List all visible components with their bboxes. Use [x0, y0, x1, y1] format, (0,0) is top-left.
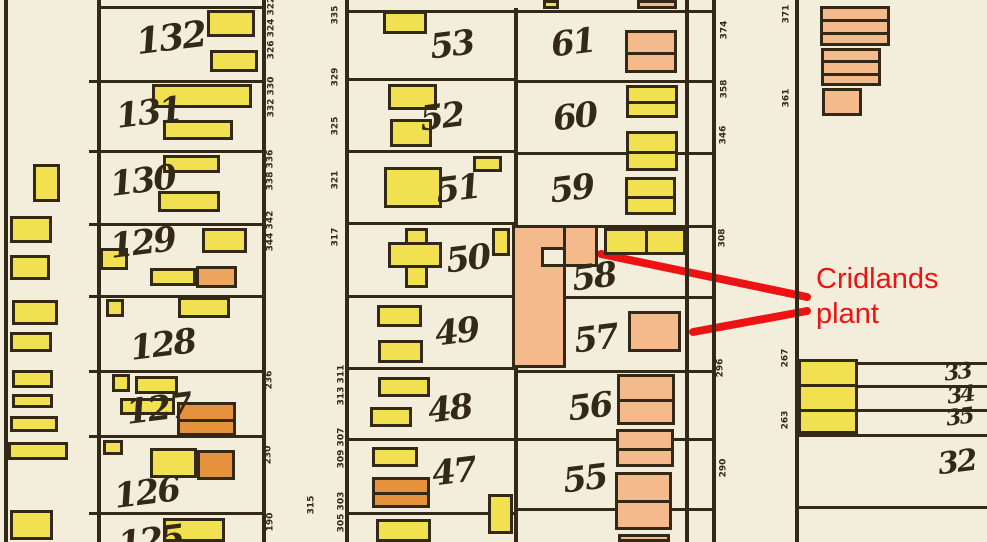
- building-footprint: [388, 242, 442, 268]
- building-floor-line: [823, 32, 887, 35]
- building-footprint: [106, 299, 124, 317]
- street-number-label: 361: [783, 89, 792, 108]
- building-footprint: [197, 450, 235, 480]
- street-number-label: 267: [782, 349, 791, 368]
- building-footprint: [798, 359, 858, 434]
- building-footprint: [376, 519, 431, 542]
- lot-line: [795, 506, 987, 509]
- street-number-label: 374: [721, 21, 730, 40]
- building-footprint: [821, 48, 881, 86]
- lot-line: [100, 6, 262, 9]
- street-number-label: 335: [332, 6, 341, 25]
- annotation-text-line1: Cridlands: [816, 262, 939, 297]
- building-floor-line: [628, 52, 674, 55]
- building-floor-line: [801, 384, 855, 387]
- plant-notch: [541, 247, 566, 267]
- lot-line: [100, 370, 262, 373]
- building-footprint: [196, 266, 237, 288]
- street-number-label: 308: [719, 229, 728, 248]
- street-line: [795, 0, 799, 542]
- lot-line: [345, 78, 514, 81]
- lot-number-label: 128: [128, 324, 197, 366]
- annotation-text: Cridlands plant: [816, 262, 939, 332]
- street-number-label: 230: [265, 446, 274, 465]
- building-footprint: [615, 472, 672, 530]
- street-number-label: 344 342: [267, 211, 276, 252]
- street-line: [712, 0, 716, 542]
- building-floor-line: [629, 151, 675, 154]
- building-footprint: [617, 374, 675, 425]
- building-floor-line: [375, 492, 427, 495]
- street-number-label: 290: [720, 459, 729, 478]
- lot-line: [345, 295, 514, 298]
- building-floor-line: [620, 399, 672, 402]
- lot-line: [795, 434, 987, 437]
- building-footprint: [625, 177, 676, 215]
- building-footprint: [10, 416, 58, 432]
- street-number-label: 315: [308, 496, 317, 515]
- building-footprint: [383, 11, 427, 34]
- lot-number-label: 48: [426, 389, 473, 428]
- building-footprint: [370, 407, 412, 427]
- building-party-wall: [645, 231, 648, 252]
- street-number-label: 326 324 322: [268, 0, 277, 59]
- building-footprint: [372, 447, 418, 467]
- lot-number-label: 126: [112, 472, 181, 514]
- lot-number-label: 35: [945, 404, 974, 429]
- lot-line: [514, 508, 712, 511]
- building-footprint: [625, 30, 677, 73]
- building-footprint: [12, 370, 53, 388]
- building-footprint: [12, 394, 53, 408]
- lot-number-label: 131: [114, 92, 183, 134]
- lot-number-label: 130: [108, 160, 177, 202]
- building-footprint: [377, 305, 422, 327]
- lot-number-label: 32: [936, 446, 977, 480]
- lot-number-label: 57: [572, 319, 619, 358]
- building-floor-line: [801, 409, 855, 412]
- lot-number-label: 47: [430, 452, 477, 491]
- building-floor-line: [628, 196, 673, 199]
- building-footprint: [378, 377, 430, 397]
- building-footprint: [10, 332, 52, 352]
- lot-number-label: 125: [116, 520, 185, 542]
- building-footprint: [112, 374, 130, 392]
- building-footprint: [473, 156, 502, 172]
- building-footprint: [820, 6, 890, 46]
- street-number-label: 325: [332, 117, 341, 136]
- building-footprint: [626, 131, 678, 171]
- lot-number-label: 59: [548, 169, 595, 208]
- building-footprint: [378, 340, 423, 363]
- street-line: [97, 0, 101, 542]
- lot-number-label: 53: [428, 25, 475, 64]
- lot-line: [514, 80, 712, 83]
- sanborn-map: Cridlands plant 132131130129128127126125…: [0, 0, 987, 542]
- lot-line: [514, 152, 712, 155]
- building-footprint: [372, 477, 430, 508]
- annotation-text-line2: plant: [816, 297, 939, 332]
- building-floor-line: [619, 448, 671, 451]
- street-number-label: 358: [721, 80, 730, 99]
- street-number-label: 263: [782, 411, 791, 430]
- building-floor-line: [618, 500, 669, 503]
- building-footprint: [637, 0, 677, 9]
- building-footprint: [822, 88, 862, 116]
- street-number-label: 371: [783, 5, 792, 24]
- building-footprint: [10, 255, 50, 280]
- building-footprint: [626, 85, 678, 118]
- building-floor-line: [824, 73, 878, 76]
- annotation-line: [693, 311, 807, 332]
- lot-number-label: 55: [561, 459, 608, 498]
- lot-line: [514, 370, 712, 373]
- lot-line: [514, 438, 712, 441]
- building-footprint: [178, 297, 230, 318]
- lot-line: [345, 438, 514, 441]
- lot-number-label: 50: [444, 239, 491, 278]
- building-footprint: [207, 10, 255, 37]
- building-footprint: [103, 440, 123, 455]
- street-number-label: 236: [266, 371, 275, 390]
- building-footprint: [12, 300, 58, 325]
- lot-number-label: 58: [570, 257, 617, 296]
- street-line: [685, 0, 689, 542]
- street-number-label: 313 311: [338, 365, 347, 406]
- lot-number-label: 132: [134, 16, 207, 60]
- lot-line: [345, 367, 514, 370]
- lot-line: [345, 150, 514, 153]
- building-floor-line: [824, 60, 878, 63]
- street-number-label: 332 330: [268, 77, 277, 118]
- building-footprint: [628, 311, 681, 352]
- street-number-label: 346: [720, 126, 729, 145]
- building-footprint: [618, 534, 670, 542]
- lot-line: [100, 80, 262, 83]
- street-number-label: 190: [267, 513, 276, 532]
- lot-number-label: 60: [551, 97, 598, 136]
- street-number-label: 305 303: [338, 492, 347, 533]
- lot-line: [345, 222, 514, 225]
- lot-number-label: 61: [549, 23, 596, 62]
- building-footprint: [543, 0, 559, 9]
- building-footprint: [150, 268, 196, 286]
- lot-number-label: 127: [124, 388, 193, 430]
- building-footprint: [202, 228, 247, 253]
- building-footprint: [616, 429, 674, 467]
- lot-number-label: 129: [108, 222, 177, 264]
- street-line: [4, 0, 8, 542]
- lot-number-label: 52: [418, 97, 465, 136]
- building-floor-line: [823, 19, 887, 22]
- lot-line: [514, 10, 712, 13]
- building-footprint: [8, 442, 68, 460]
- building-footprint: [210, 50, 258, 72]
- street-number-label: 321: [332, 171, 341, 190]
- street-number-label: 309 307: [338, 428, 347, 469]
- building-footprint: [33, 164, 60, 202]
- lot-number-label: 49: [433, 312, 480, 351]
- building-floor-line: [629, 101, 675, 104]
- street-number-label: 296: [717, 359, 726, 378]
- building-footprint: [492, 228, 510, 256]
- building-footprint: [10, 216, 52, 243]
- street-number-label: 329: [332, 68, 341, 87]
- lot-number-label: 51: [434, 169, 481, 208]
- annotation-line: [601, 254, 807, 297]
- lot-number-label: 56: [566, 387, 613, 426]
- street-number-label: 338 336: [267, 150, 276, 191]
- lot-line: [100, 150, 262, 153]
- building-footprint: [488, 494, 513, 534]
- lot-line: [345, 10, 514, 13]
- street-number-label: 317: [332, 228, 341, 247]
- building-footprint: [604, 228, 686, 255]
- building-footprint: [10, 510, 53, 540]
